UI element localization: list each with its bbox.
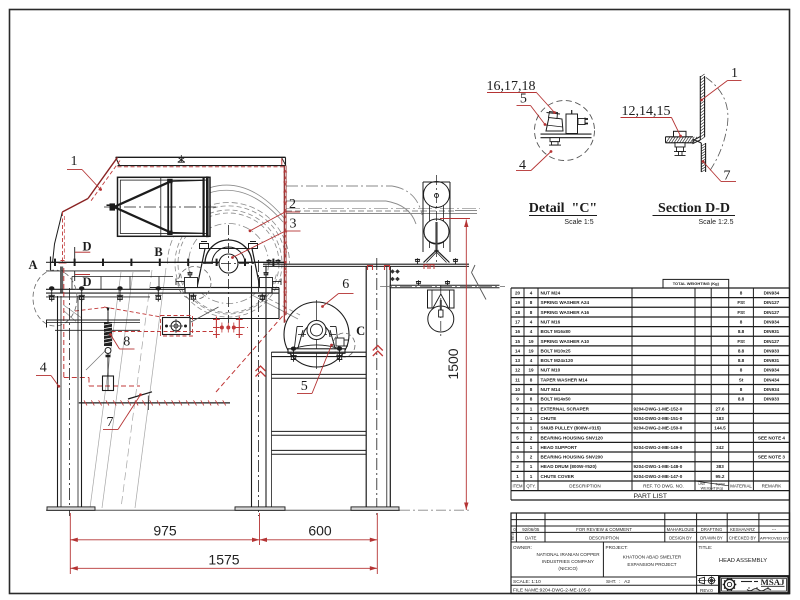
svg-text:INDUSTRIES COMPANY: INDUSTRIES COMPANY (542, 559, 594, 564)
svg-text:REF. TO DWG. NO.: REF. TO DWG. NO. (643, 483, 684, 488)
svg-text:A: A (28, 258, 37, 272)
svg-text:19: 19 (528, 368, 534, 373)
svg-text:13: 13 (515, 358, 521, 363)
svg-text:11: 11 (515, 377, 520, 382)
svg-text:2: 2 (289, 197, 296, 212)
svg-text:3: 3 (290, 217, 297, 232)
svg-text:1: 1 (530, 416, 533, 421)
svg-text:FOR REVIEW & COMMENT: FOR REVIEW & COMMENT (576, 527, 632, 532)
svg-text:FSt: FSt (737, 310, 745, 315)
svg-text:8: 8 (740, 387, 743, 392)
svg-text:DESCRIPTION: DESCRIPTION (589, 536, 619, 541)
svg-text:WEIGHT(Kg): WEIGHT(Kg) (701, 487, 724, 491)
svg-text:DIN127: DIN127 (764, 310, 780, 315)
svg-text:QTY.: QTY. (526, 483, 535, 488)
svg-text:Scale 1:2.5: Scale 1:2.5 (698, 219, 733, 226)
svg-text:95.2: 95.2 (715, 474, 724, 479)
svg-text:14: 14 (515, 348, 521, 353)
svg-text:1575: 1575 (208, 552, 239, 568)
svg-text:19: 19 (528, 339, 534, 344)
svg-text:19: 19 (528, 348, 534, 353)
svg-text:183: 183 (716, 416, 724, 421)
svg-text:FSt: FSt (737, 339, 745, 344)
svg-text:5: 5 (516, 435, 519, 440)
svg-text:BOLT M16x80: BOLT M16x80 (541, 329, 571, 334)
svg-text:St: St (739, 377, 744, 382)
svg-text:10: 10 (515, 387, 521, 392)
svg-text:HEAD SUPPORT: HEAD SUPPORT (541, 445, 578, 450)
svg-text:8.8: 8.8 (738, 397, 745, 402)
svg-text:8: 8 (530, 300, 533, 305)
svg-text:D: D (82, 240, 91, 254)
svg-text:BEARING HOUSING SNV120: BEARING HOUSING SNV120 (541, 435, 604, 440)
svg-text:242: 242 (716, 445, 724, 450)
svg-text:DIN934: DIN934 (764, 387, 780, 392)
svg-text:7: 7 (516, 416, 519, 421)
svg-text:7: 7 (107, 415, 114, 430)
svg-text:4: 4 (530, 291, 533, 296)
svg-text:1: 1 (530, 445, 533, 450)
svg-text:DIN934: DIN934 (764, 368, 780, 373)
svg-text:HEAD DRUM (800W-#520): HEAD DRUM (800W-#520) (541, 464, 598, 469)
svg-text:SEE NOTE 4: SEE NOTE 4 (758, 435, 786, 440)
svg-text:TITLE:: TITLE: (699, 545, 713, 550)
svg-text:1: 1 (516, 474, 519, 479)
svg-text:---: --- (772, 527, 777, 532)
svg-text:5: 5 (301, 379, 308, 394)
svg-text:27.6: 27.6 (715, 406, 724, 411)
svg-text:1: 1 (530, 426, 533, 431)
svg-text:8.8: 8.8 (738, 329, 745, 334)
svg-text:1: 1 (530, 464, 533, 469)
svg-text:DIN934: DIN934 (764, 291, 780, 296)
svg-text:8: 8 (516, 406, 519, 411)
svg-text:EXPANSION PROJECT: EXPANSION PROJECT (627, 562, 676, 567)
svg-text:2: 2 (530, 435, 533, 440)
svg-text:9204-DWG-1-ME-148-0: 9204-DWG-1-ME-148-0 (634, 464, 683, 469)
svg-text:NUT M24: NUT M24 (541, 291, 561, 296)
svg-text:8: 8 (123, 335, 130, 350)
svg-text:1500: 1500 (445, 348, 461, 379)
svg-text:1: 1 (530, 406, 533, 411)
svg-text:KHATOON ABAD SMELTER: KHATOON ABAD SMELTER (623, 555, 682, 560)
svg-text:8: 8 (530, 387, 533, 392)
svg-text:APPROVED BY: APPROVED BY (760, 536, 789, 541)
svg-text:OWNER:: OWNER: (513, 545, 532, 550)
svg-text:KESHAVARZ: KESHAVARZ (730, 527, 755, 532)
svg-text:20: 20 (515, 291, 521, 296)
svg-text:8: 8 (740, 291, 743, 296)
svg-text:SHT. : A2: SHT. : A2 (606, 579, 630, 585)
svg-text:ITEM: ITEM (512, 483, 523, 488)
svg-text:3: 3 (516, 455, 519, 460)
svg-text:18: 18 (515, 310, 521, 315)
svg-text:5: 5 (520, 92, 527, 107)
svg-text:NATIONAL IRANIAN COPPER: NATIONAL IRANIAN COPPER (536, 552, 600, 557)
svg-text:TAPER WASHER M14: TAPER WASHER M14 (541, 377, 588, 382)
svg-text:Section D-D: Section D-D (658, 201, 730, 216)
svg-text:8: 8 (740, 319, 743, 324)
svg-text:DIN934: DIN934 (764, 319, 780, 324)
svg-text:B: B (154, 245, 162, 259)
svg-text:SEE NOTE 3: SEE NOTE 3 (758, 455, 786, 460)
svg-text:8: 8 (740, 368, 743, 373)
svg-text:MSAJ: MSAJ (761, 577, 786, 587)
svg-text:6: 6 (342, 277, 349, 292)
svg-text:12,14,15: 12,14,15 (622, 104, 671, 119)
svg-text:FSt: FSt (737, 300, 745, 305)
svg-text:8.8: 8.8 (738, 358, 745, 363)
svg-text:4: 4 (40, 361, 47, 376)
svg-text:8: 8 (530, 310, 533, 315)
svg-text:SPRING WASHER A24: SPRING WASHER A24 (541, 300, 590, 305)
svg-text:2: 2 (530, 455, 533, 460)
svg-text:BEARING HOUSING SNV200: BEARING HOUSING SNV200 (541, 455, 604, 460)
svg-text:2: 2 (516, 464, 519, 469)
svg-text:9: 9 (516, 397, 519, 402)
svg-text:EXTERNAL SCRAPER: EXTERNAL SCRAPER (541, 406, 590, 411)
svg-text:4: 4 (516, 445, 519, 450)
svg-text:REV.: REV. (511, 532, 515, 540)
svg-text:DIN931: DIN931 (764, 358, 780, 363)
svg-text:1: 1 (530, 474, 533, 479)
svg-text:TOTAL WEIGHTING (Kg): TOTAL WEIGHTING (Kg) (673, 281, 720, 286)
svg-text:SNUB PULLEY (800W-#315): SNUB PULLEY (800W-#315) (541, 426, 602, 431)
svg-text:DESIGN BY: DESIGN BY (669, 536, 692, 541)
svg-text:4: 4 (530, 319, 533, 324)
svg-text:8: 8 (530, 377, 533, 382)
svg-text:PROJECT:: PROJECT: (606, 545, 628, 550)
svg-text:REMARK: REMARK (762, 483, 783, 488)
svg-text:MATERIAL: MATERIAL (730, 483, 752, 488)
svg-text:SPRING WASHER A16: SPRING WASHER A16 (541, 310, 590, 315)
svg-text:SPRING WASHER A10: SPRING WASHER A10 (541, 339, 590, 344)
svg-text:DIN127: DIN127 (764, 300, 780, 305)
svg-text:DIN933: DIN933 (764, 397, 780, 402)
svg-text:9204-DWG-2-ME-149-0: 9204-DWG-2-ME-149-0 (634, 445, 683, 450)
svg-text:9204-DWG-2-ME-150-0: 9204-DWG-2-ME-150-0 (634, 426, 683, 431)
svg-text:9204-DWG-1-ME-152-0: 9204-DWG-1-ME-152-0 (634, 406, 683, 411)
svg-text:CHECKED BY: CHECKED BY (729, 536, 756, 541)
svg-text:975: 975 (153, 523, 177, 539)
svg-text:PART LIST: PART LIST (633, 493, 667, 500)
svg-text:D: D (82, 275, 91, 289)
svg-text:19: 19 (515, 300, 521, 305)
svg-text:MAHARLOUIE: MAHARLOUIE (667, 527, 695, 532)
svg-text:6: 6 (516, 426, 519, 431)
svg-text:C: C (356, 324, 365, 338)
svg-text:4: 4 (530, 358, 533, 363)
svg-text:UNIT: UNIT (698, 482, 705, 486)
svg-text:15: 15 (515, 339, 521, 344)
svg-text:FILE NAME:9204-DWG-2-ME-105-0: FILE NAME:9204-DWG-2-ME-105-0 (513, 587, 591, 593)
svg-text:9204-DWG-2-ME-147-0: 9204-DWG-2-ME-147-0 (634, 474, 683, 479)
svg-text:CHUTE COVER: CHUTE COVER (541, 474, 575, 479)
svg-text:383: 383 (716, 464, 724, 469)
svg-text:12: 12 (515, 368, 521, 373)
svg-text:BOLT M24x120: BOLT M24x120 (541, 358, 574, 363)
svg-text:HEAD ASSEMBLY: HEAD ASSEMBLY (719, 558, 767, 564)
svg-text:DIN931: DIN931 (764, 329, 780, 334)
svg-text:8: 8 (530, 397, 533, 402)
svg-text:8.8: 8.8 (738, 348, 745, 353)
svg-text:Scale 1:5: Scale 1:5 (564, 219, 593, 226)
svg-text:144.5: 144.5 (714, 426, 726, 431)
svg-text:DIN127: DIN127 (764, 339, 780, 344)
svg-text:17: 17 (515, 319, 521, 324)
svg-text:BOLT M10x25: BOLT M10x25 (541, 348, 571, 353)
svg-text:DIN933: DIN933 (764, 348, 780, 353)
svg-text:DATE: DATE (525, 536, 536, 541)
svg-text:16,17,18: 16,17,18 (487, 79, 536, 94)
svg-text:BOLT M14x50: BOLT M14x50 (541, 397, 571, 402)
svg-text:NUT M16: NUT M16 (541, 319, 561, 324)
svg-text:DESCRIPTION: DESCRIPTION (569, 483, 600, 488)
svg-text:DRAFTING: DRAFTING (701, 527, 722, 532)
svg-text:9204-DWG-2-ME-151-0: 9204-DWG-2-ME-151-0 (634, 416, 683, 421)
svg-text:(NICICO): (NICICO) (558, 566, 578, 571)
svg-text:DIN434: DIN434 (764, 377, 780, 382)
svg-text:NUT M10: NUT M10 (541, 368, 561, 373)
svg-text:Detail "C": Detail "C" (529, 201, 597, 216)
svg-text:DRAWN BY: DRAWN BY (700, 536, 723, 541)
svg-text:REV.0: REV.0 (700, 588, 713, 593)
svg-text:SCALE: 1:10: SCALE: 1:10 (513, 579, 541, 585)
svg-text:NUT M14: NUT M14 (541, 387, 561, 392)
svg-text:1: 1 (71, 154, 78, 169)
svg-text:92/06/05: 92/06/05 (522, 527, 540, 532)
svg-text:1: 1 (731, 66, 738, 81)
svg-text:4: 4 (530, 329, 533, 334)
svg-text:16: 16 (515, 329, 521, 334)
svg-text:CHUTE: CHUTE (541, 416, 557, 421)
svg-text:600: 600 (308, 523, 332, 539)
